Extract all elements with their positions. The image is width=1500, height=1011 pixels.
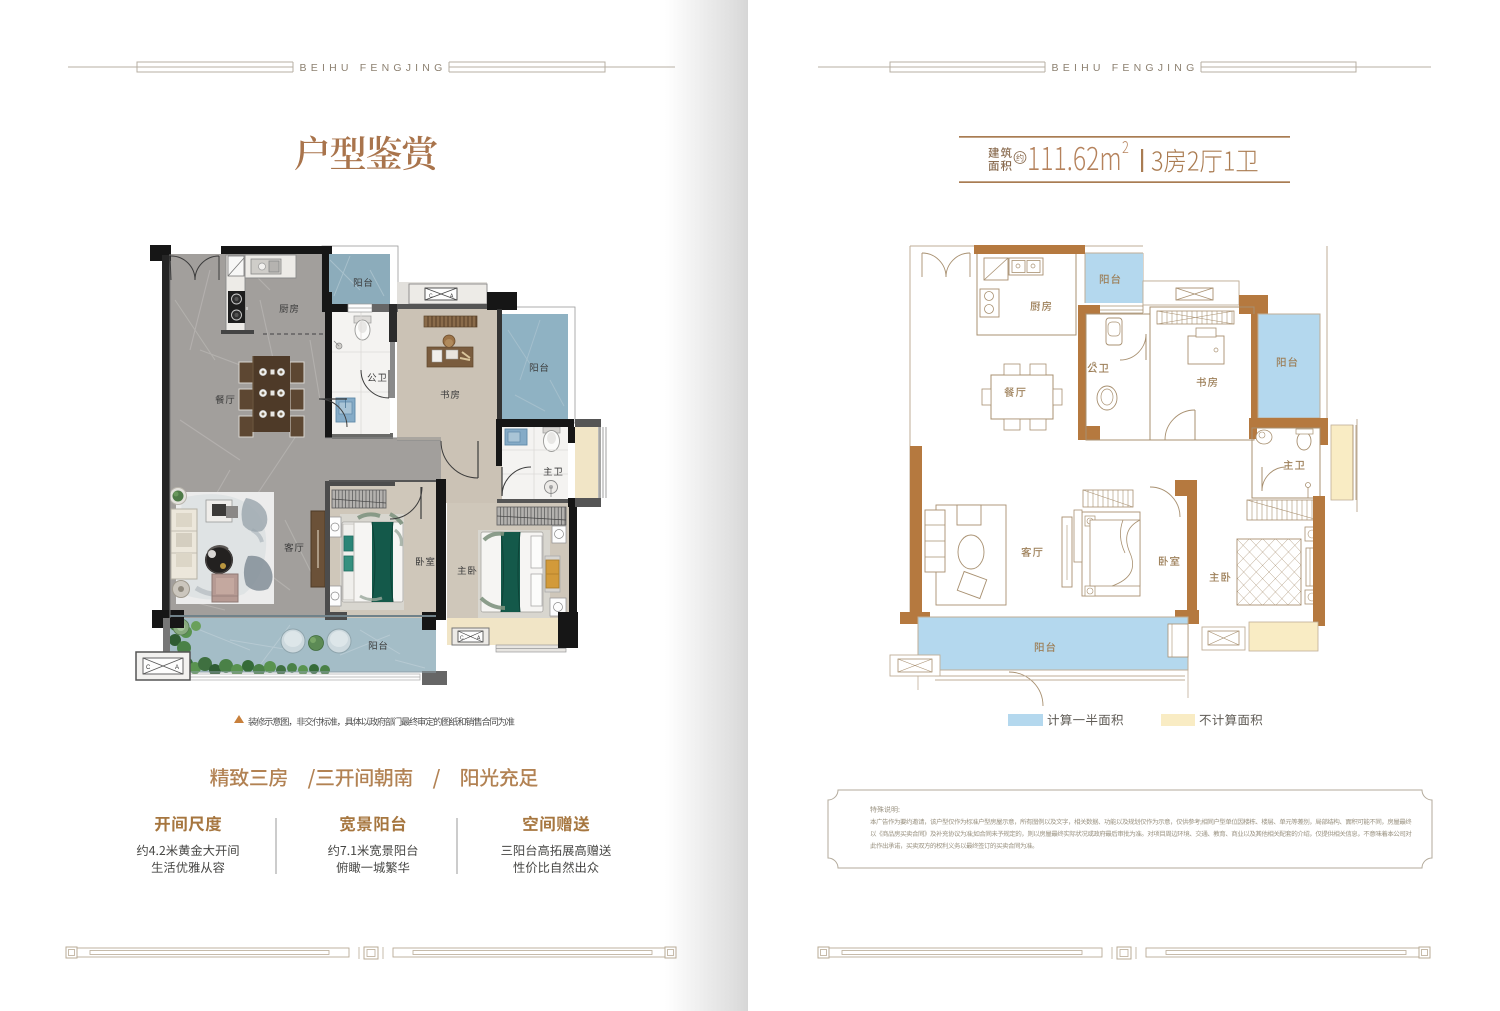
- svg-text:C: C: [429, 294, 433, 300]
- svg-text:BEIHU FENGJING: BEIHU FENGJING: [300, 62, 447, 74]
- svg-text:BEIHU FENGJING: BEIHU FENGJING: [1052, 62, 1199, 74]
- svg-text:C: C: [460, 636, 464, 642]
- svg-text:A: A: [175, 665, 179, 671]
- svg-text:C: C: [146, 665, 151, 671]
